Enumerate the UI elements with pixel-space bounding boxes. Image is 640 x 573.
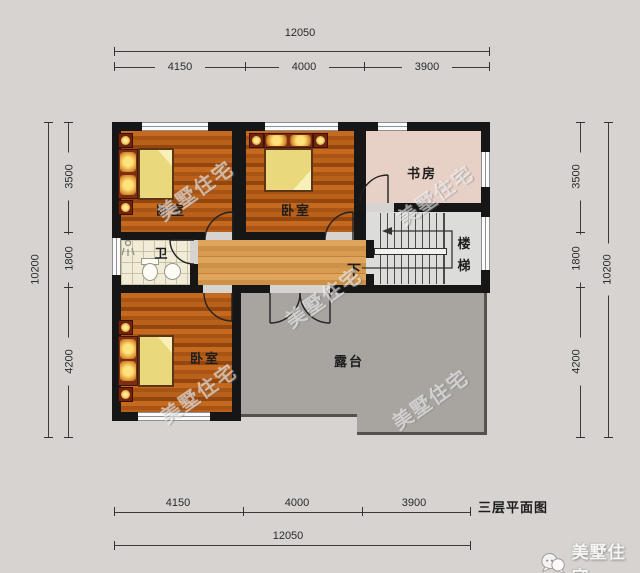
brand-logo-text: 美墅住宅 [572,538,640,573]
dim-left-seg1: 3500 [64,153,77,201]
dim-tick [64,287,73,288]
wall-bath-right [190,264,198,285]
toilet [142,263,158,281]
pillow [120,175,136,195]
dim-tick [114,541,115,550]
pillow [120,361,136,381]
dim-top-seg3: 3900 [402,61,452,74]
wall-row2-b [232,285,270,293]
dim-tick [64,437,73,438]
dim-tick [114,47,115,56]
pillow [266,135,287,146]
stair-handrail [374,248,447,255]
dim-tick [604,437,613,438]
dim-left-seg3: 4200 [64,338,77,386]
dim-tick [489,62,490,71]
pillow [120,339,136,359]
dim-tick [470,507,471,516]
dim-tick [44,122,53,123]
lamp-icon [121,136,130,145]
dim-tick [576,232,585,233]
terrace-label: 露台 [324,351,374,370]
dim-right-seg2: 1800 [571,235,584,283]
window-bath-left [112,238,121,275]
window-stair-right [481,217,490,270]
dim-tick [604,122,613,123]
nightstand [118,133,133,148]
dim-tick [114,507,115,516]
wall-corridor-stair-stub-top [366,240,374,258]
dim-tick [243,507,244,516]
dim-line-left-overall [48,122,49,437]
dim-right-seg3: 4200 [571,338,584,386]
nightstand [313,133,328,148]
dim-top-overall: 12050 [270,27,330,40]
dim-tick [489,47,490,56]
wall-bed1-bottom [121,232,205,240]
dim-tick [114,62,115,71]
dim-tick [362,507,363,516]
lamp-icon [252,136,261,145]
nightstand [118,387,133,402]
lamp-icon [121,203,130,212]
window-bed1-top [142,122,208,131]
dim-tick [470,541,471,550]
window-bed2-top [265,122,338,131]
dim-line-bottom-segments [114,512,470,513]
lamp-icon [121,390,130,399]
lamp-icon [121,323,130,332]
nightstand [118,200,133,215]
stairs-label: 楼梯 [456,233,472,277]
wall-bed1-bed2 [232,131,246,240]
dim-bottom-seg2: 4000 [272,497,322,510]
dim-tick [576,122,585,123]
nightstand [249,133,264,148]
dim-tick [576,437,585,438]
dim-bottom-seg1: 4150 [153,497,203,510]
dim-tick [44,437,53,438]
dim-top-seg2: 4000 [279,61,329,74]
dim-tick [245,62,246,71]
dim-right-seg1: 3500 [571,153,584,201]
bedroom-top-mid-label: 卧室 [271,200,321,219]
dim-tick [64,232,73,233]
chat-bubbles-icon [540,551,567,573]
blanket-fold [158,337,172,353]
dim-line-top-overall [114,51,489,52]
dim-right-overall: 10200 [602,244,615,296]
pillow [290,135,311,146]
window-study-top [378,122,407,131]
dim-tick [576,287,585,288]
dim-line-bottom-overall [114,545,470,546]
brand-logo: 美墅住宅 [540,538,640,573]
dim-tick [364,62,365,71]
nightstand [118,320,133,335]
dim-left-overall: 10200 [30,246,43,294]
floor-plan-canvas: 卧室 卧室 卧室 书房 露台 卫 下 楼梯 美墅住宅 美墅住宅 美墅住宅 美墅住… [0,0,640,573]
wall-corridor-stair-stub-bottom [366,274,374,285]
plan-title: 三层平面图 [478,497,548,516]
dim-bottom-overall: 12050 [258,530,318,543]
blanket-fold [158,150,172,166]
dim-top-seg1: 4150 [155,61,205,74]
window-study-right [481,152,490,187]
dim-left-seg2: 1800 [64,235,77,283]
lamp-icon [316,136,325,145]
dim-tick [64,122,73,123]
pillow [120,152,136,172]
wall-bed2-study [354,131,366,240]
wall-bed3-terrace [232,293,241,421]
wall-bed2-bottom [246,232,325,240]
wall-row2-a [112,285,203,293]
blanket-fold [293,170,311,190]
bathroom-label: 卫 [152,243,170,262]
sink [164,263,181,280]
dim-bottom-seg3: 3900 [389,497,439,510]
